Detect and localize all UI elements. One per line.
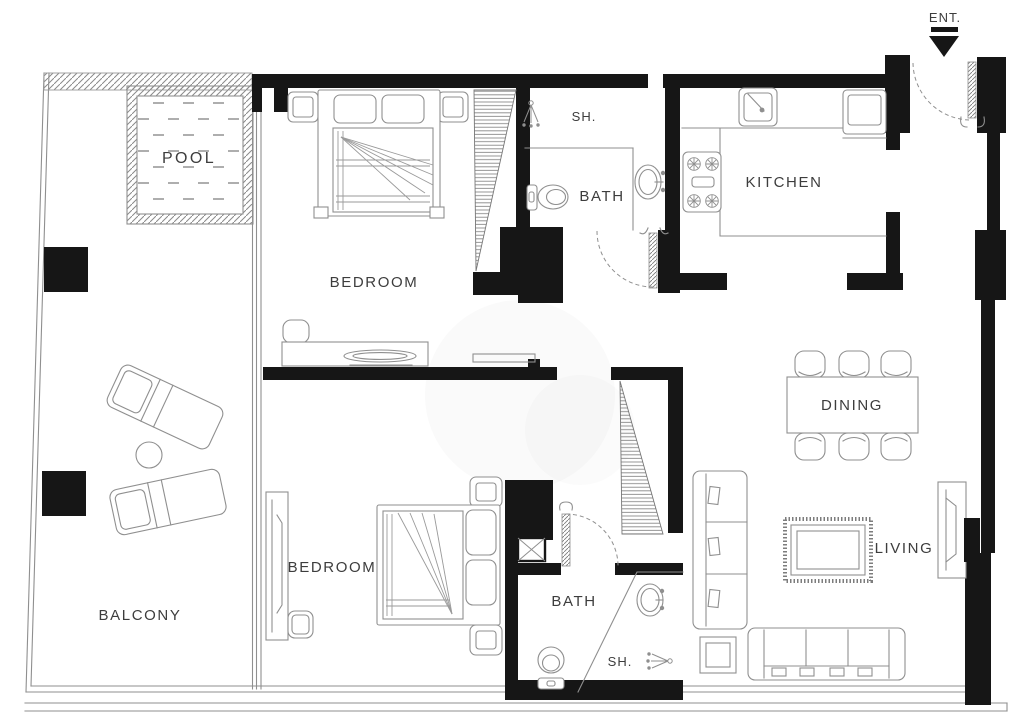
balcony-column-2 [42, 471, 86, 516]
bath-bottom-door-leaf [562, 514, 570, 566]
sofa-horizontal [748, 628, 905, 680]
sofa-vertical [693, 471, 747, 629]
pillow [466, 510, 496, 555]
shaft-box [518, 538, 545, 561]
dining: DINING [787, 351, 918, 460]
bath-top-door-leaf [649, 233, 657, 288]
living: LIVING [693, 471, 980, 680]
toilet-top [527, 185, 568, 210]
watermark [425, 300, 635, 490]
pillow [466, 560, 496, 605]
sink-bottom [637, 584, 664, 616]
door-hinge-mark [560, 502, 573, 510]
lounge-chair-1 [105, 362, 226, 451]
lounge-chair-2 [108, 468, 227, 536]
bedroom-top-label: BEDROOM [330, 274, 419, 291]
desk-chair [283, 320, 309, 343]
rug [785, 519, 871, 581]
bedroom-bottom-label: BEDROOM [288, 559, 377, 576]
toilet-bottom [538, 647, 564, 689]
shower-head-icon-bottom [647, 653, 672, 669]
entrance-door-leaf [968, 62, 976, 118]
shower-bottom-label: SH. [608, 654, 633, 669]
bath-bottom-door-arc [566, 514, 618, 566]
balcony-table [136, 442, 162, 468]
living-label: LIVING [875, 540, 934, 557]
entrance-arrow-bar [931, 27, 958, 32]
pillow [382, 95, 424, 123]
stove [683, 152, 721, 212]
entrance-door-arc [913, 63, 971, 120]
kitchen: KITCHEN [682, 88, 886, 236]
balcony-label: BALCONY [99, 607, 182, 624]
kitchen-sink [739, 88, 777, 126]
bed-bottom [377, 505, 500, 625]
entrance-arrow-icon [929, 36, 959, 57]
sink-top [635, 165, 665, 199]
side-table [700, 637, 736, 673]
pillow [334, 95, 376, 123]
wall-notch [262, 88, 274, 112]
nightstand-bottom-1 [470, 477, 502, 507]
entrance-label: ENT. [929, 10, 961, 25]
bath-top-door-arc [597, 231, 653, 287]
floor-plan: POOL BALCONY [0, 0, 1024, 723]
nightstand-bottom-2 [470, 625, 502, 655]
entrance: ENT. [913, 10, 984, 127]
bedroom-bottom: BEDROOM [266, 477, 502, 655]
pool: POOL [127, 86, 253, 224]
bath-bottom-label: BATH [551, 593, 596, 610]
bed-top [314, 90, 444, 218]
wardrobe-bottom [620, 381, 663, 534]
kitchen-label: KITCHEN [745, 174, 822, 191]
shower-top-label: SH. [572, 109, 597, 124]
fridge [843, 90, 886, 134]
bath-top-label: BATH [579, 188, 624, 205]
dining-label: DINING [821, 397, 883, 414]
pool-label: POOL [162, 150, 216, 167]
balcony-column-1 [44, 247, 88, 292]
